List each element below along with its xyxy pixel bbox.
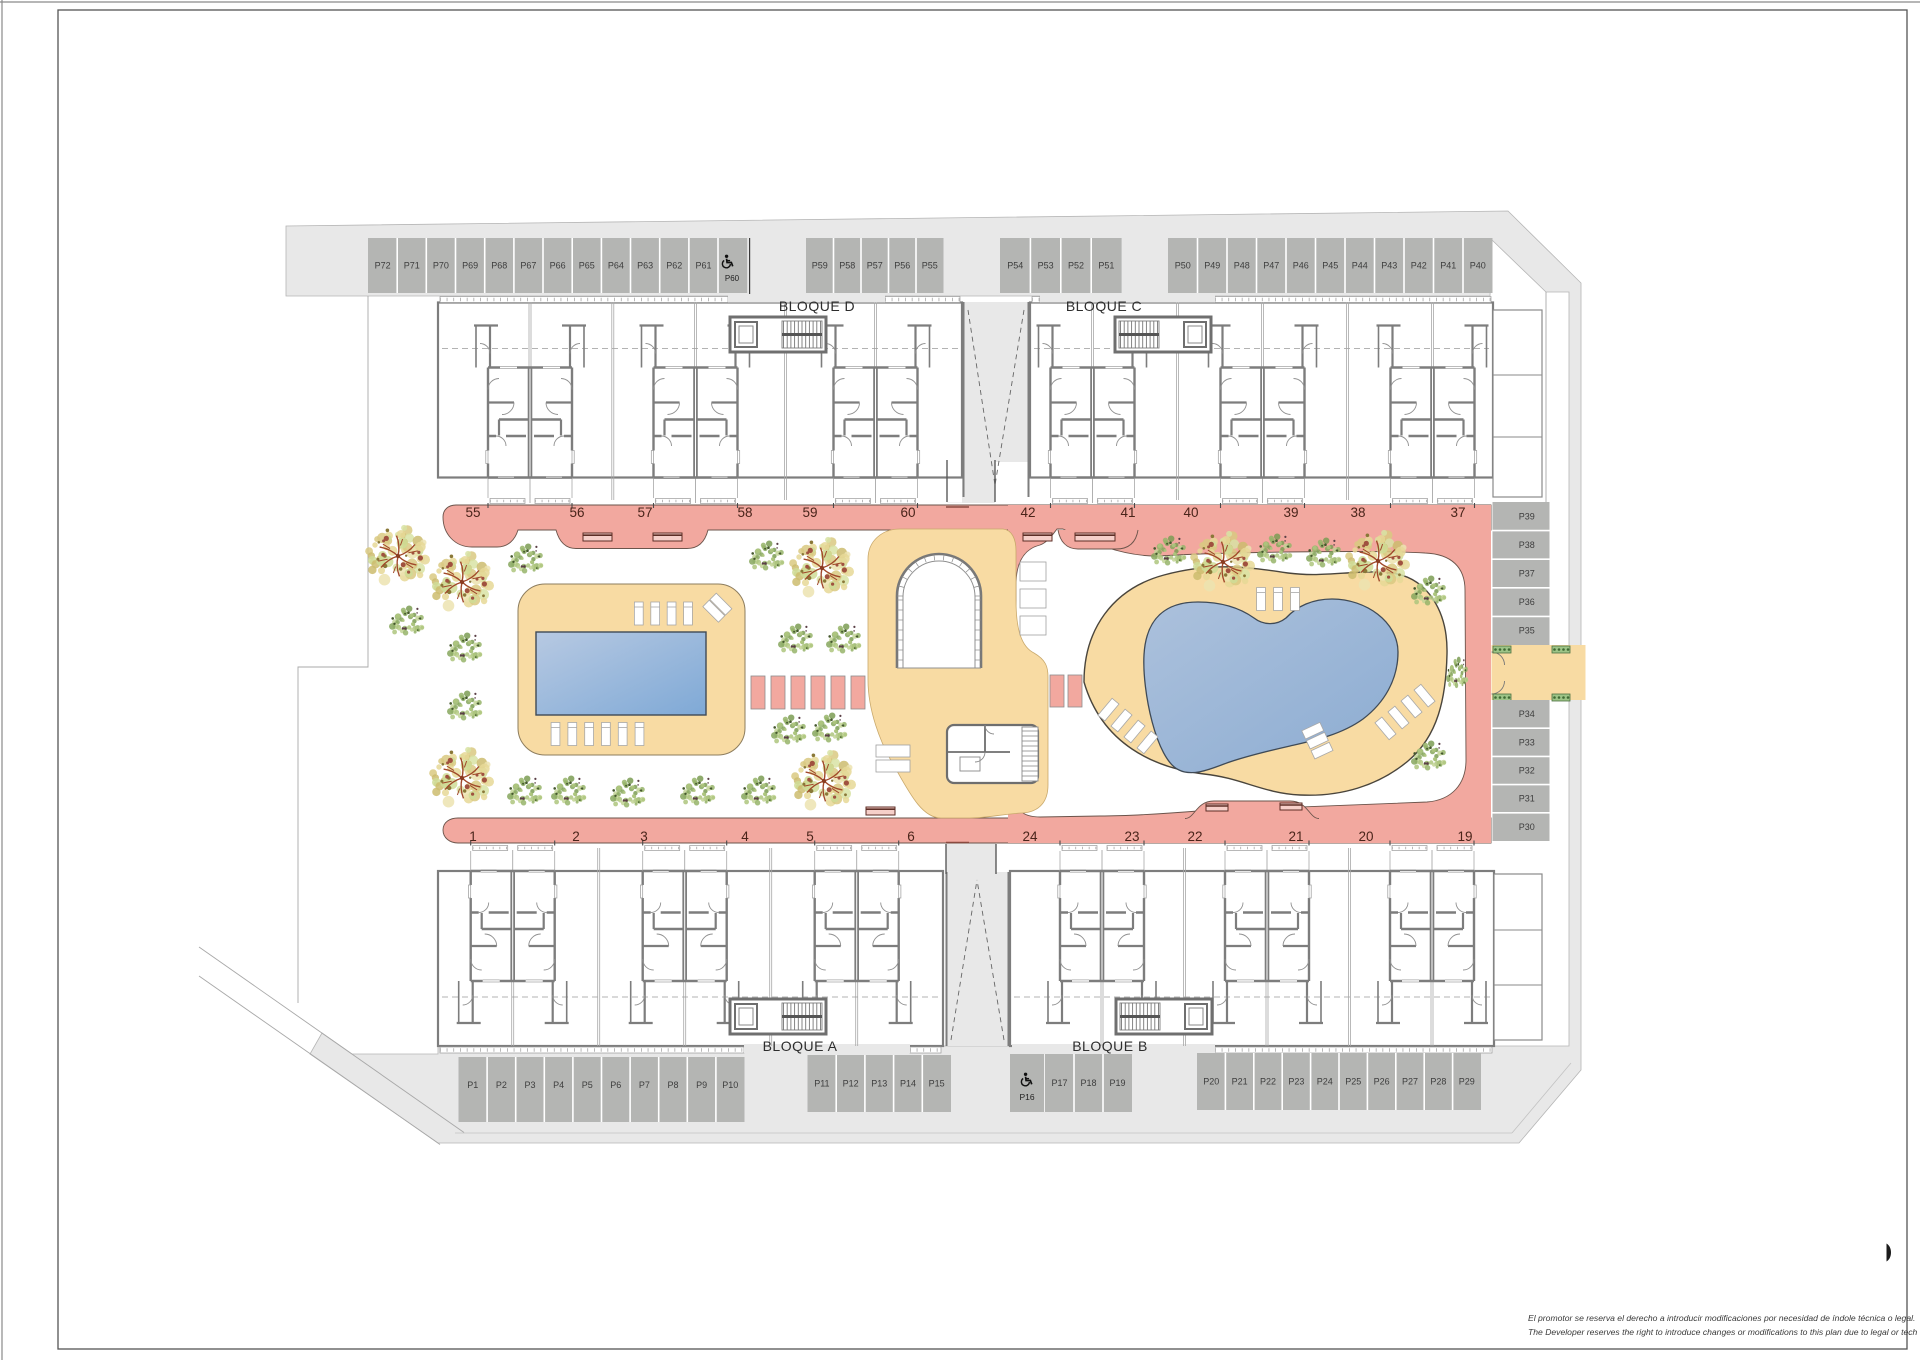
svg-text:56: 56 <box>569 505 584 520</box>
svg-text:P38: P38 <box>1519 540 1535 550</box>
svg-text:P51: P51 <box>1098 261 1114 271</box>
svg-text:55: 55 <box>465 505 480 520</box>
svg-text:P4: P4 <box>553 1080 564 1090</box>
svg-text:P8: P8 <box>667 1080 678 1090</box>
svg-text:P43: P43 <box>1381 261 1397 271</box>
svg-text:BLOQUE B: BLOQUE B <box>1072 1038 1148 1054</box>
svg-text:P7: P7 <box>639 1080 650 1090</box>
svg-text:P65: P65 <box>579 261 595 271</box>
svg-text:P66: P66 <box>550 261 566 271</box>
svg-text:P33: P33 <box>1519 737 1535 747</box>
svg-text:P18: P18 <box>1080 1078 1096 1088</box>
svg-text:P16: P16 <box>1019 1092 1034 1102</box>
svg-text:P67: P67 <box>520 261 536 271</box>
svg-text:P17: P17 <box>1051 1078 1067 1088</box>
svg-text:P32: P32 <box>1519 766 1535 776</box>
svg-text:P69: P69 <box>462 261 478 271</box>
svg-text:1: 1 <box>469 829 477 844</box>
svg-text:P62: P62 <box>666 261 682 271</box>
svg-text:40: 40 <box>1183 505 1198 520</box>
svg-text:42: 42 <box>1020 505 1035 520</box>
svg-text:P48: P48 <box>1234 261 1250 271</box>
svg-text:21: 21 <box>1288 829 1303 844</box>
svg-text:P34: P34 <box>1519 709 1535 719</box>
svg-text:P53: P53 <box>1038 261 1054 271</box>
svg-text:4: 4 <box>741 829 749 844</box>
svg-text:P31: P31 <box>1519 794 1535 804</box>
svg-text:P61: P61 <box>695 261 711 271</box>
svg-text:P26: P26 <box>1374 1077 1390 1087</box>
svg-text:P59: P59 <box>812 261 828 271</box>
svg-text:P19: P19 <box>1109 1078 1125 1088</box>
svg-text:P25: P25 <box>1345 1077 1361 1087</box>
svg-text:57: 57 <box>637 505 652 520</box>
svg-text:P63: P63 <box>637 261 653 271</box>
svg-text:2: 2 <box>572 829 580 844</box>
svg-text:P60: P60 <box>725 274 740 283</box>
svg-text:P42: P42 <box>1411 261 1427 271</box>
svg-text:P2: P2 <box>496 1080 507 1090</box>
svg-text:3: 3 <box>640 829 648 844</box>
svg-text:41: 41 <box>1120 505 1135 520</box>
svg-text:P28: P28 <box>1430 1077 1446 1087</box>
svg-text:P22: P22 <box>1260 1077 1276 1087</box>
svg-text:P36: P36 <box>1519 597 1535 607</box>
svg-text:P14: P14 <box>900 1079 916 1089</box>
svg-text:19: 19 <box>1457 829 1472 844</box>
svg-text:24: 24 <box>1022 829 1038 844</box>
svg-text:P49: P49 <box>1204 261 1220 271</box>
svg-text:39: 39 <box>1283 505 1298 520</box>
svg-text:BLOQUE A: BLOQUE A <box>763 1038 838 1054</box>
svg-text:P6: P6 <box>610 1080 621 1090</box>
svg-text:P58: P58 <box>839 261 855 271</box>
svg-text:P46: P46 <box>1293 261 1309 271</box>
svg-text:P23: P23 <box>1288 1077 1304 1087</box>
svg-text:P41: P41 <box>1440 261 1456 271</box>
svg-text:P44: P44 <box>1352 261 1368 271</box>
svg-text:P29: P29 <box>1459 1077 1475 1087</box>
svg-text:P50: P50 <box>1175 261 1191 271</box>
svg-text:P70: P70 <box>433 261 449 271</box>
svg-text:P1: P1 <box>467 1080 478 1090</box>
svg-text:P56: P56 <box>894 261 910 271</box>
svg-text:BLOQUE D: BLOQUE D <box>779 298 855 314</box>
svg-text:P45: P45 <box>1322 261 1338 271</box>
svg-text:P9: P9 <box>696 1080 707 1090</box>
svg-text:P24: P24 <box>1317 1077 1333 1087</box>
svg-text:20: 20 <box>1358 829 1373 844</box>
svg-text:P15: P15 <box>929 1079 945 1089</box>
svg-text:P11: P11 <box>814 1079 829 1089</box>
svg-text:23: 23 <box>1124 829 1139 844</box>
svg-text:P39: P39 <box>1519 511 1535 521</box>
svg-text:P3: P3 <box>524 1080 535 1090</box>
svg-text:58: 58 <box>737 505 752 520</box>
svg-text:38: 38 <box>1350 505 1365 520</box>
svg-text:El promotor se reserva el dere: El promotor se reserva el derecho a intr… <box>1528 1313 1915 1323</box>
svg-text:22: 22 <box>1187 829 1202 844</box>
svg-text:P35: P35 <box>1519 626 1535 636</box>
svg-text:BLOQUE C: BLOQUE C <box>1066 298 1142 314</box>
svg-text:P54: P54 <box>1007 261 1023 271</box>
svg-text:P64: P64 <box>608 261 624 271</box>
svg-text:P47: P47 <box>1263 261 1279 271</box>
svg-text:37: 37 <box>1450 505 1465 520</box>
svg-text:5: 5 <box>806 829 814 844</box>
svg-text:P5: P5 <box>582 1080 593 1090</box>
svg-text:P55: P55 <box>922 261 938 271</box>
svg-text:P71: P71 <box>404 261 420 271</box>
svg-text:P52: P52 <box>1068 261 1084 271</box>
svg-text:P21: P21 <box>1232 1077 1248 1087</box>
svg-text:P27: P27 <box>1402 1077 1418 1087</box>
svg-text:P37: P37 <box>1519 569 1535 579</box>
svg-text:P20: P20 <box>1203 1077 1219 1087</box>
svg-text:P68: P68 <box>491 261 507 271</box>
svg-text:P72: P72 <box>375 261 391 271</box>
svg-text:59: 59 <box>802 505 817 520</box>
svg-text:P40: P40 <box>1470 261 1486 271</box>
svg-text:P30: P30 <box>1519 822 1535 832</box>
svg-text:P12: P12 <box>843 1079 859 1089</box>
svg-text:60: 60 <box>900 505 915 520</box>
svg-text:6: 6 <box>907 829 915 844</box>
svg-text:P10: P10 <box>722 1080 738 1090</box>
svg-text:P13: P13 <box>871 1079 887 1089</box>
svg-text:P57: P57 <box>867 261 883 271</box>
svg-text:The Developer reserves the rig: The Developer reserves the right to intr… <box>1528 1327 1918 1337</box>
